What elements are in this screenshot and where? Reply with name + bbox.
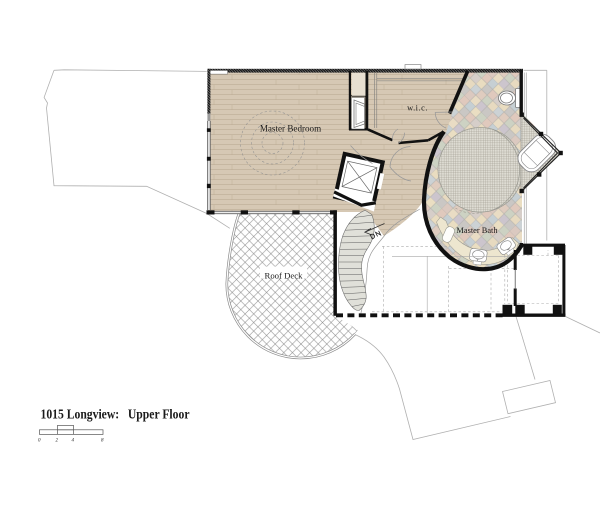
- svg-text:1015 Longview: Upper Floor: 1015 Longview: Upper Floor: [41, 406, 190, 421]
- svg-text:Roof Deck: Roof Deck: [265, 271, 304, 281]
- svg-text:Master Bath: Master Bath: [456, 226, 498, 235]
- svg-text:w.i.c.: w.i.c.: [407, 104, 428, 113]
- svg-text:Master Bedroom: Master Bedroom: [260, 124, 321, 134]
